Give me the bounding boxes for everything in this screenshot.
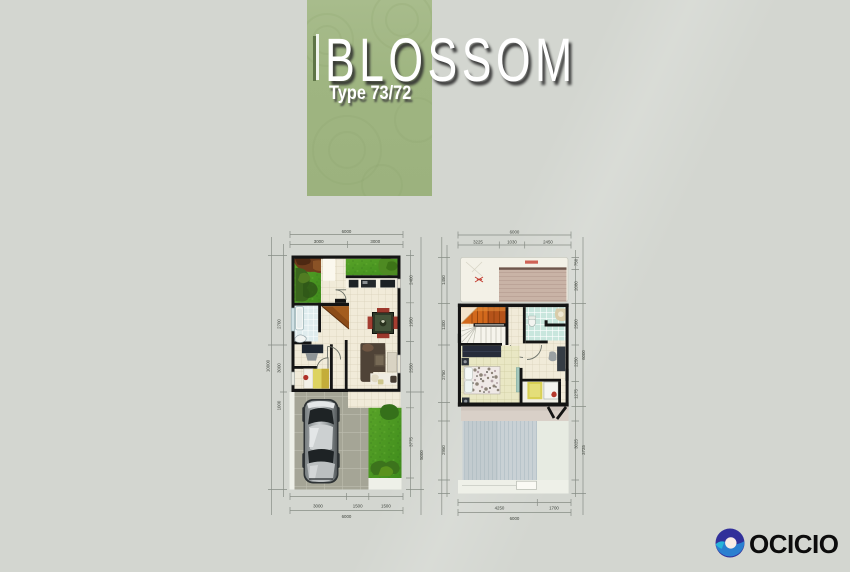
svg-text:3025: 3025	[574, 439, 579, 449]
svg-text:10000: 10000	[265, 359, 270, 372]
svg-text:1500: 1500	[381, 504, 391, 509]
svg-text:6000: 6000	[581, 350, 586, 360]
svg-text:3000: 3000	[313, 504, 323, 509]
svg-text:2550: 2550	[409, 363, 414, 373]
svg-text:3000: 3000	[314, 239, 324, 244]
svg-text:1030: 1030	[507, 240, 517, 245]
svg-text:3000: 3000	[370, 239, 380, 244]
svg-text:1450: 1450	[441, 275, 446, 285]
svg-text:2950: 2950	[441, 445, 446, 455]
svg-text:6000: 6000	[510, 230, 520, 235]
svg-text:2250: 2250	[574, 357, 579, 367]
svg-text:3000: 3000	[277, 363, 282, 373]
svg-text:750: 750	[574, 258, 579, 266]
svg-text:1275: 1275	[574, 389, 579, 399]
svg-text:4250: 4250	[495, 506, 505, 511]
svg-text:2400: 2400	[409, 275, 414, 285]
svg-text:6000: 6000	[510, 516, 520, 521]
svg-text:3725: 3725	[581, 445, 586, 455]
svg-text:1000: 1000	[277, 400, 282, 410]
svg-text:3225: 3225	[473, 240, 483, 245]
svg-text:6000: 6000	[342, 514, 352, 519]
svg-text:1950: 1950	[409, 317, 414, 327]
svg-text:1700: 1700	[549, 506, 559, 511]
svg-text:1300: 1300	[441, 320, 446, 330]
svg-text:2750: 2750	[441, 370, 446, 380]
svg-text:1500: 1500	[353, 504, 363, 509]
svg-text:2500: 2500	[574, 319, 579, 329]
svg-text:5000: 5000	[419, 450, 424, 460]
svg-text:2700: 2700	[277, 319, 282, 329]
svg-text:3775: 3775	[409, 437, 414, 447]
svg-text:2080: 2080	[574, 281, 579, 291]
svg-text:2450: 2450	[543, 240, 553, 245]
svg-text:6000: 6000	[342, 229, 352, 234]
